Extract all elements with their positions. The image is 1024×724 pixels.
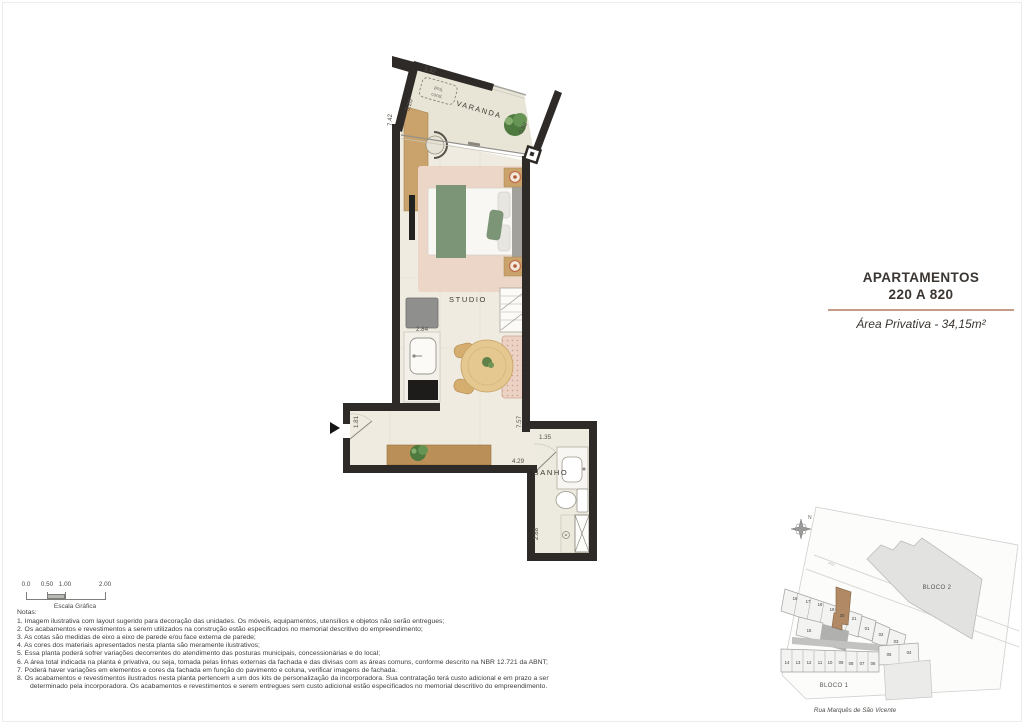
unit-label: 07 (860, 661, 865, 666)
scale-tick: 0.50 (41, 581, 53, 588)
unit-label: 15 (807, 628, 812, 633)
unit-label: 09 (839, 660, 844, 665)
unit-label: 11 (818, 660, 823, 665)
title-divider (828, 309, 1014, 311)
scale-tick: 1.00 (59, 581, 71, 588)
unit-label: 21 (852, 616, 857, 621)
notes-heading: Notas: (17, 609, 557, 617)
note-item: 5. Essa planta poderá sofrer variações d… (17, 650, 557, 658)
bloco1-label: BLOCO 1 (820, 683, 849, 689)
entry-arrow-icon (330, 422, 340, 434)
unit-label: 08 (849, 661, 854, 666)
column (524, 146, 540, 162)
street-name: Rua Marquês de São Vicente (814, 707, 897, 714)
scale-tick: 2.00 (99, 581, 111, 588)
dim-banho-width: 1.35 (539, 434, 552, 441)
floor-plan: proj. cond. (330, 48, 600, 563)
graphic-scale: 0.0 0.50 1.00 2.00 Escala Gráfica (20, 581, 130, 611)
cooktop (408, 380, 438, 400)
unit-label: 03 (894, 639, 899, 644)
tv (409, 195, 415, 240)
room-label-banho: BANHO (534, 468, 569, 477)
dim-banho-depth: 2.88 (533, 527, 540, 540)
title-block: APARTAMENTOS 220 A 820 Área Privativa - … (828, 270, 1014, 331)
unit-label-highlighted: 20 (840, 613, 845, 618)
sideboard (387, 445, 491, 465)
note-item: 2. Os acabamentos e revestimentos a sere… (17, 626, 557, 634)
bloco2-label: BLOCO 2 (923, 585, 952, 591)
dim-right-wall: 7.57 (516, 415, 523, 428)
unit-label: 02 (879, 632, 884, 637)
floor-surfaces (350, 62, 589, 553)
note-item: 1. Imagem ilustrativa com layout sugerid… (17, 618, 557, 626)
unit-label: 14 (785, 660, 790, 665)
note-item: 8. Os acabamentos e revestimentos ilustr… (17, 675, 557, 691)
unit-label: 13 (796, 660, 801, 665)
note-item: 7. Poderá haver variações em elementos e… (17, 667, 557, 675)
site-plan: FNA BLOCO 2 16 17 (772, 503, 1020, 718)
note-item: 6. A área total indicada na planta é pri… (17, 659, 557, 667)
unit-label: 10 (828, 660, 833, 665)
north-compass-icon (791, 519, 811, 539)
note-item: 4. As cores dos materiais apresentados n… (17, 642, 557, 650)
unit-label: 17 (806, 599, 811, 604)
unit-label: 18 (818, 602, 823, 607)
dim-hall: 4.29 (512, 458, 525, 465)
north-label: N (808, 515, 812, 521)
note-item: 3. As cotas são medidas de eixo a eixo d… (17, 634, 557, 642)
notes-section: Notas: 1. Imagem ilustrativa com layout … (17, 609, 557, 691)
unit-label: 04 (907, 650, 912, 655)
unit-label: 06 (871, 661, 876, 666)
scale-tick: 0.0 (22, 581, 31, 588)
shower (561, 515, 589, 553)
room-label-studio: STUDIO (449, 295, 487, 304)
fridge (406, 298, 438, 328)
unit-label: 01 (865, 626, 870, 631)
unit-label: 19 (830, 607, 835, 612)
title-line2: 220 A 820 (828, 287, 1014, 302)
dim-left-wall: 7.42 (387, 113, 394, 126)
kitchen (404, 298, 440, 402)
dim-entry: 1.81 (353, 415, 360, 428)
private-area-label: Área Privativa - 34,15m² (828, 317, 1014, 331)
unit-label: 12 (807, 660, 812, 665)
title-line1: APARTAMENTOS (828, 270, 1014, 285)
scale-fill-segment (47, 594, 65, 599)
unit-label: 16 (793, 596, 798, 601)
unit-label: 05 (887, 652, 892, 657)
dim-kitchen: 2.84 (416, 326, 429, 333)
